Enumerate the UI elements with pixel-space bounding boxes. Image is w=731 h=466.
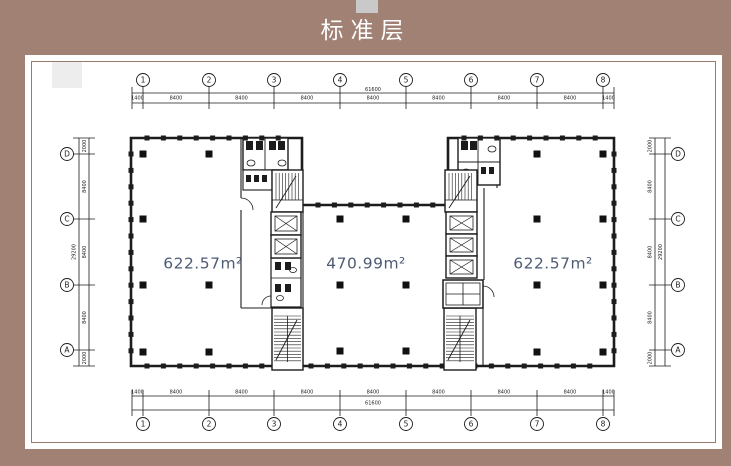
building-outline [131, 138, 614, 366]
castellation-tooth [587, 364, 592, 369]
castellation-tooth [325, 364, 330, 369]
castellation-tooth [348, 203, 353, 208]
castellation-tooth [177, 136, 182, 141]
castellation-tooth [210, 364, 215, 369]
castellation-tooth [544, 136, 549, 141]
column [140, 216, 147, 223]
castellation-tooth [210, 136, 215, 141]
axis-bubble-label: A [64, 346, 70, 355]
castellation-tooth [145, 364, 150, 369]
castellation-tooth [612, 332, 617, 337]
column [534, 151, 541, 158]
castellation-tooth [332, 203, 337, 208]
axis-bubble-label: 6 [469, 76, 474, 85]
castellation-tooth [391, 364, 396, 369]
castellation-tooth [259, 136, 264, 141]
castellation-tooth [612, 266, 617, 271]
axis-bubble-label: 7 [535, 420, 540, 429]
area-label: 470.99m² [326, 255, 406, 273]
castellation-tooth [612, 299, 617, 304]
castellation-tooth [129, 283, 134, 288]
castellation-tooth [494, 136, 499, 141]
dim-label: 2000 [648, 352, 654, 365]
castellation-tooth [129, 250, 134, 255]
castellation-tooth [177, 364, 182, 369]
axis-bubble-label: 5 [404, 76, 409, 85]
column [403, 348, 410, 355]
axis-bubble-label: 6 [469, 420, 474, 429]
castellation-tooth [414, 203, 419, 208]
column [140, 349, 147, 356]
castellation-tooth [129, 152, 134, 157]
dim-total-label: 61600 [365, 87, 381, 93]
castellation-tooth [129, 184, 134, 189]
castellation-tooth [511, 136, 516, 141]
castellation-tooth [612, 250, 617, 255]
column [337, 348, 344, 355]
axis-bubble-label: 5 [404, 420, 409, 429]
castellation-tooth [612, 283, 617, 288]
axis-bubble-label: 2 [207, 420, 212, 429]
dim-label: 8400 [564, 390, 577, 396]
castellation-tooth [227, 136, 232, 141]
dim-label: 8400 [432, 96, 445, 102]
column [600, 282, 607, 289]
dim-label: 8400 [82, 180, 88, 193]
castellation-tooth [129, 217, 134, 222]
column [206, 282, 213, 289]
castellation-tooth [612, 217, 617, 222]
dim-label: 1400 [131, 390, 144, 396]
dim-label: 8400 [367, 390, 380, 396]
area-label: 622.57m² [163, 255, 243, 273]
column [337, 216, 344, 223]
dim-label: 1400 [131, 96, 144, 102]
column [600, 349, 607, 356]
axis-bubble-label: C [675, 215, 680, 224]
castellation-tooth [129, 348, 134, 353]
left-core-service [271, 258, 301, 307]
dim-label: 8400 [301, 96, 314, 102]
castellation-tooth [129, 299, 134, 304]
castellation-tooth [560, 136, 565, 141]
axis-bubble-label: 4 [338, 420, 343, 429]
castellation-tooth [358, 364, 363, 369]
axis-bubble-label: 2 [207, 76, 212, 85]
castellation-tooth [161, 136, 166, 141]
castellation-tooth [374, 364, 379, 369]
stair [445, 170, 477, 212]
dim-total-label: 29200 [72, 244, 78, 260]
castellation-tooth [612, 168, 617, 173]
castellation-tooth [259, 364, 264, 369]
axis-bubble-label: B [64, 281, 69, 290]
castellation-tooth [309, 364, 314, 369]
column [140, 282, 147, 289]
dim-label: 8400 [235, 390, 248, 396]
dim-label: 8400 [564, 96, 577, 102]
castellation-tooth [407, 364, 412, 369]
castellation-tooth [538, 364, 543, 369]
dim-label: 8400 [301, 390, 314, 396]
axis-bubble-label: A [675, 346, 681, 355]
castellation-tooth [365, 203, 370, 208]
axis-bubble-label: 8 [601, 420, 606, 429]
castellation-tooth [381, 203, 386, 208]
axis-bubble-label: B [675, 281, 680, 290]
castellation-tooth [612, 152, 617, 157]
dim-label: 8400 [235, 96, 248, 102]
dim-label: 2000 [648, 140, 654, 153]
axis-bubble-label: 7 [535, 76, 540, 85]
dim-label: 2000 [82, 140, 88, 153]
castellation-tooth [612, 316, 617, 321]
castellation-tooth [612, 348, 617, 353]
castellation-tooth [129, 201, 134, 206]
castellation-tooth [522, 364, 527, 369]
castellation-tooth [576, 136, 581, 141]
column [600, 216, 607, 223]
column [600, 151, 607, 158]
castellation-tooth [423, 364, 428, 369]
castellation-tooth [593, 136, 598, 141]
dim-label: 2000 [82, 352, 88, 365]
dim-label: 8400 [367, 96, 380, 102]
castellation-tooth [398, 203, 403, 208]
dim-label: 8400 [432, 390, 445, 396]
dim-label: 8400 [498, 390, 511, 396]
column [403, 216, 410, 223]
castellation-tooth [227, 364, 232, 369]
dim-label: 8400 [648, 180, 654, 193]
castellation-tooth [145, 136, 150, 141]
castellation-tooth [555, 364, 560, 369]
dim-label: 8400 [648, 246, 654, 259]
castellation-tooth [478, 136, 483, 141]
castellation-tooth [129, 332, 134, 337]
castellation-tooth [527, 136, 532, 141]
column [534, 349, 541, 356]
floor-plan: 1400840084008400840084008400840014006160… [0, 0, 731, 466]
axis-bubble-label: 3 [272, 420, 277, 429]
dim-total-label: 29200 [658, 244, 664, 260]
dim-label: 8400 [648, 311, 654, 324]
castellation-tooth [462, 136, 467, 141]
castellation-tooth [194, 136, 199, 141]
axis-bubble-label: 1 [141, 76, 146, 85]
castellation-tooth [612, 201, 617, 206]
axis-bubble-label: D [675, 150, 681, 159]
dim-label: 8400 [498, 96, 511, 102]
castellation-tooth [243, 364, 248, 369]
dim-total-label: 61600 [365, 401, 381, 407]
castellation-tooth [129, 266, 134, 271]
axis-bubble-label: C [64, 215, 69, 224]
area-label: 622.57m² [513, 255, 593, 273]
castellation-tooth [276, 136, 281, 141]
castellation-tooth [129, 234, 134, 239]
column [140, 151, 147, 158]
castellation-tooth [161, 364, 166, 369]
castellation-tooth [129, 316, 134, 321]
axis-bubble-label: 3 [272, 76, 277, 85]
dim-label: 8400 [82, 246, 88, 259]
castellation-tooth [341, 364, 346, 369]
castellation-tooth [194, 364, 199, 369]
axis-bubble-label: 8 [601, 76, 606, 85]
castellation-tooth [505, 364, 510, 369]
castellation-tooth [129, 168, 134, 173]
column [534, 216, 541, 223]
dim-label: 1400 [602, 390, 615, 396]
column [534, 282, 541, 289]
axis-bubble-label: D [64, 150, 70, 159]
axis-bubble-label: 4 [338, 76, 343, 85]
dim-label: 8400 [170, 96, 183, 102]
column [337, 282, 344, 289]
watermark-smudge [52, 62, 82, 88]
dim-label: 1400 [602, 96, 615, 102]
dim-label: 8400 [170, 390, 183, 396]
castellation-tooth [430, 203, 435, 208]
castellation-tooth [489, 364, 494, 369]
column [206, 151, 213, 158]
page: { "title_bar": { "title": "标准层" }, "plan… [0, 0, 731, 466]
dim-label: 8400 [82, 311, 88, 324]
castellation-tooth [571, 364, 576, 369]
castellation-tooth [612, 234, 617, 239]
axis-bubble-label: 1 [141, 420, 146, 429]
column [206, 349, 213, 356]
column [403, 282, 410, 289]
castellation-tooth [316, 203, 321, 208]
castellation-tooth [243, 136, 248, 141]
castellation-tooth [612, 184, 617, 189]
